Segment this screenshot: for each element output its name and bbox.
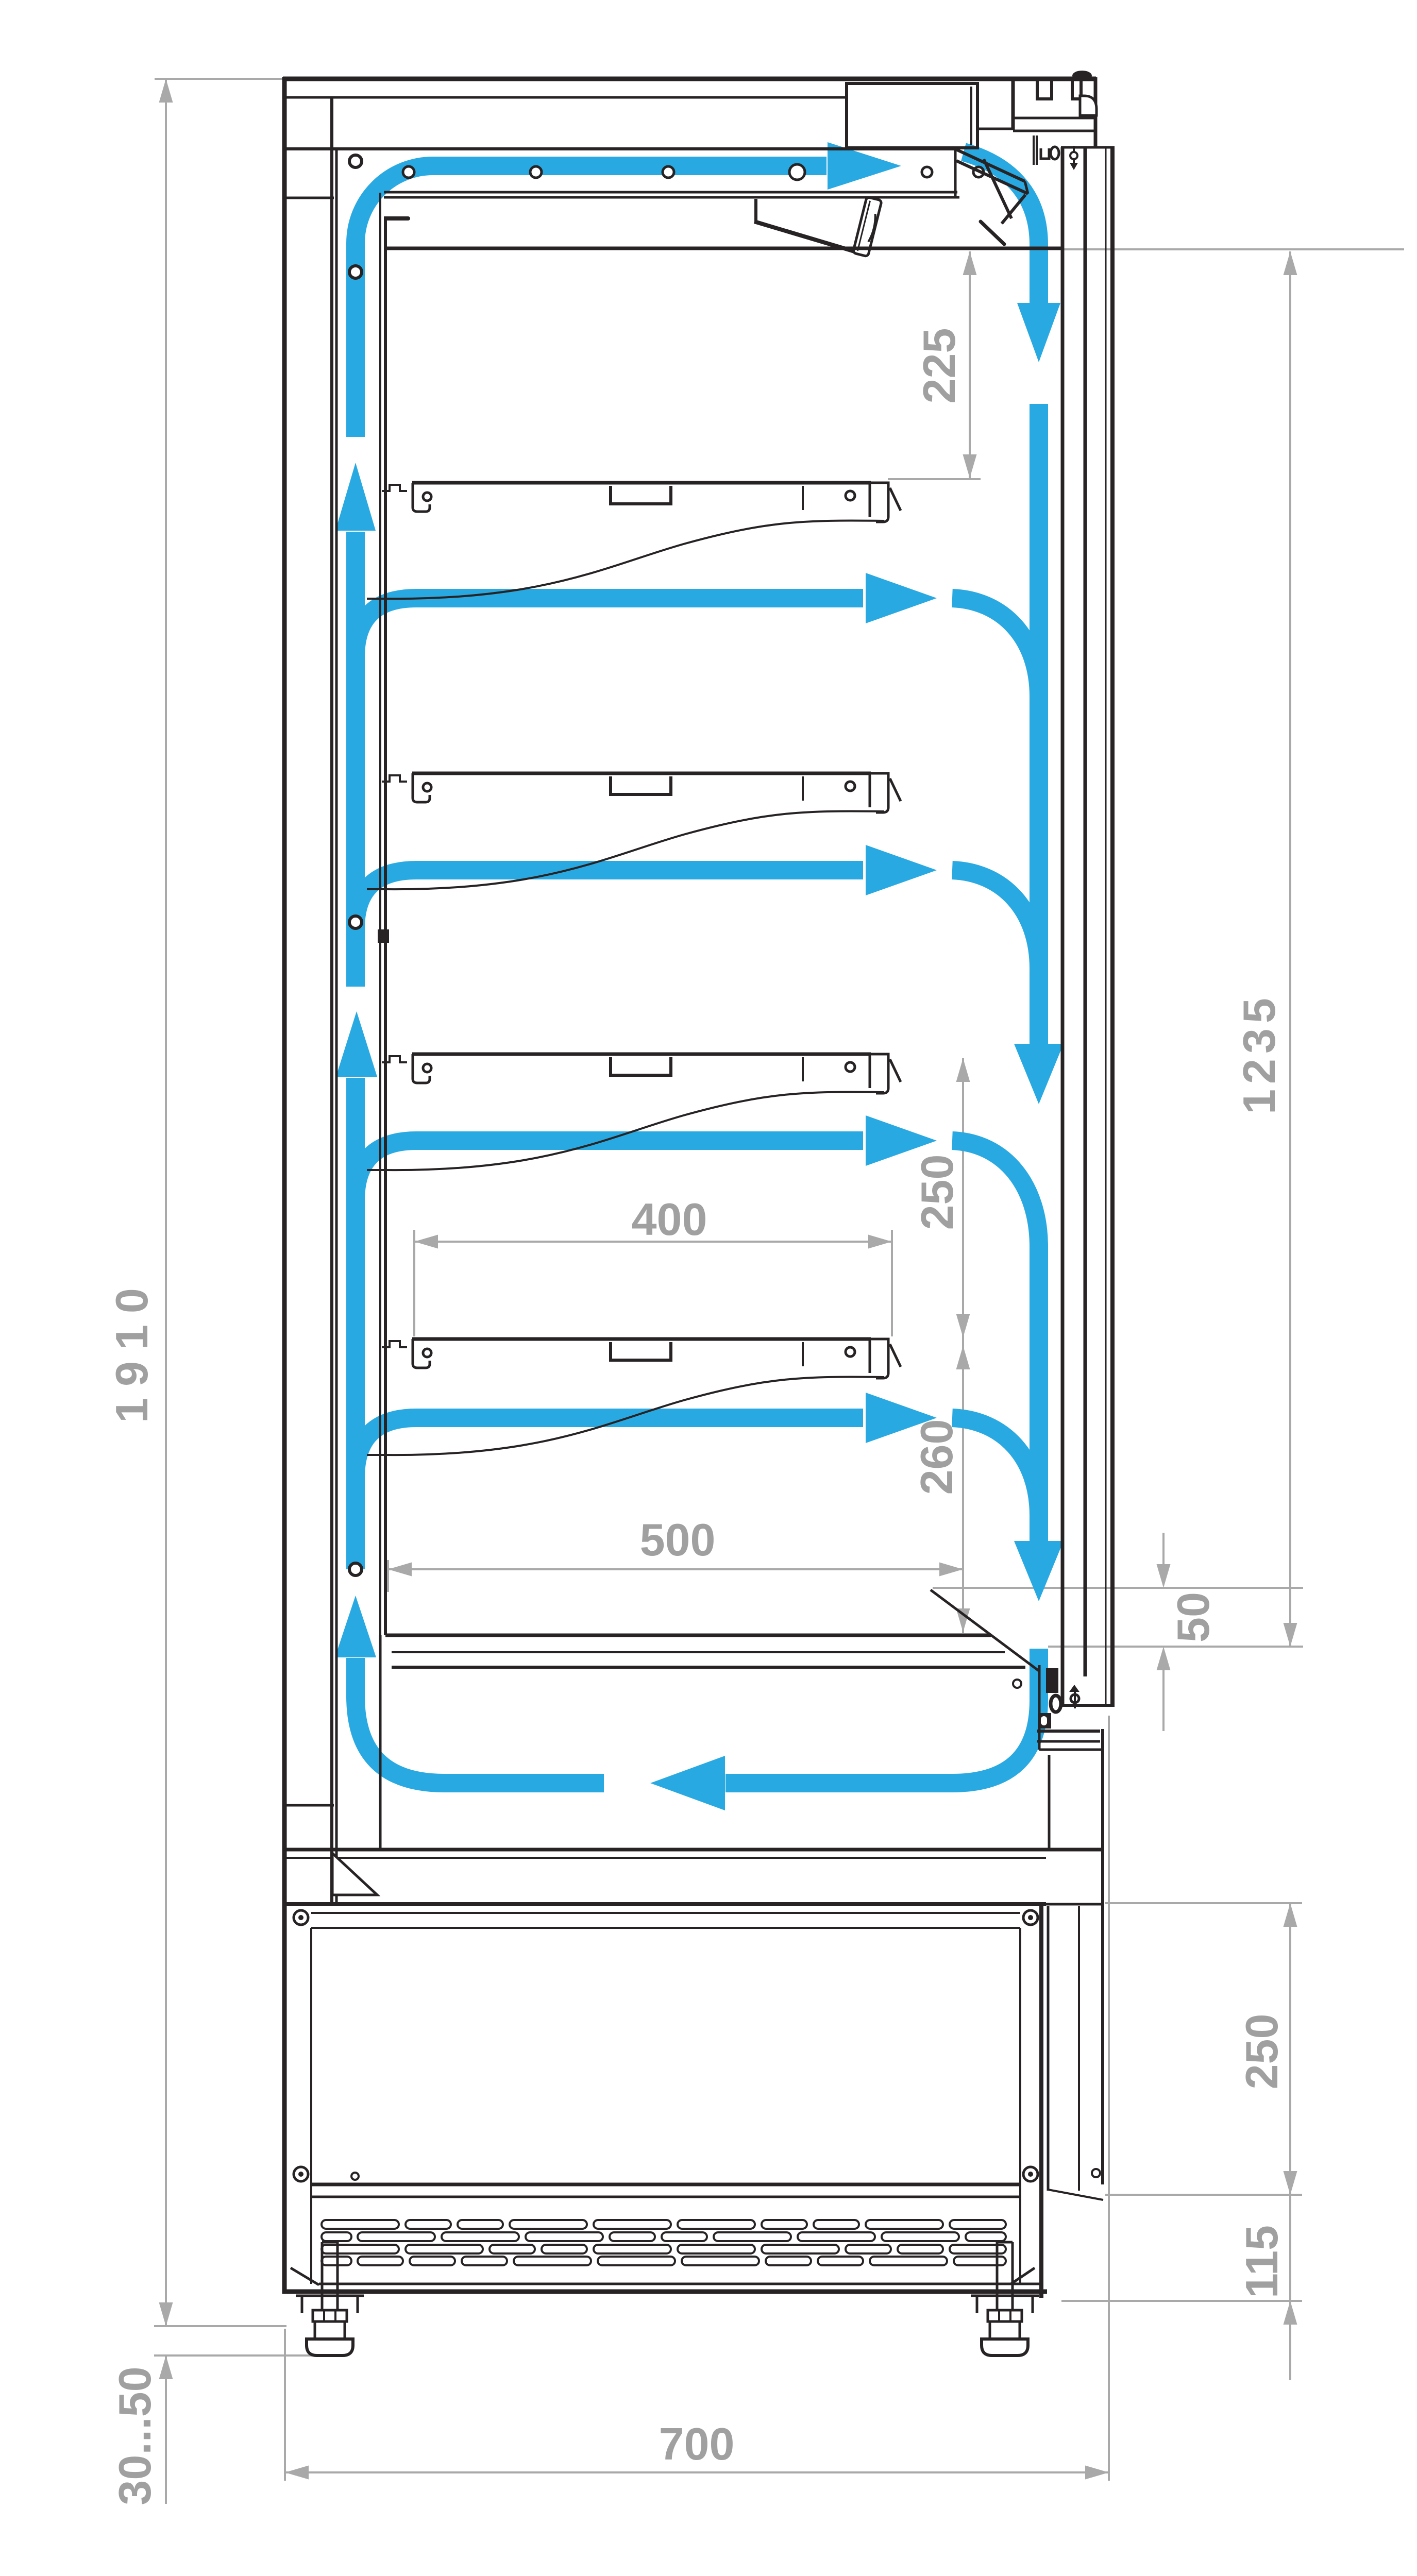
svg-text:400: 400 (632, 1194, 707, 1245)
svg-text:50: 50 (1168, 1592, 1219, 1642)
svg-text:1235: 1235 (1234, 993, 1285, 1114)
svg-text:500: 500 (640, 1514, 716, 1565)
svg-text:1910: 1910 (106, 1277, 157, 1423)
svg-text:700: 700 (659, 2418, 735, 2469)
svg-text:250: 250 (1236, 2014, 1287, 2090)
svg-text:225: 225 (914, 328, 965, 404)
svg-text:30...50: 30...50 (109, 2366, 160, 2505)
svg-text:250: 250 (912, 1155, 963, 1230)
svg-text:115: 115 (1236, 2225, 1287, 2298)
svg-text:260: 260 (911, 1419, 962, 1495)
